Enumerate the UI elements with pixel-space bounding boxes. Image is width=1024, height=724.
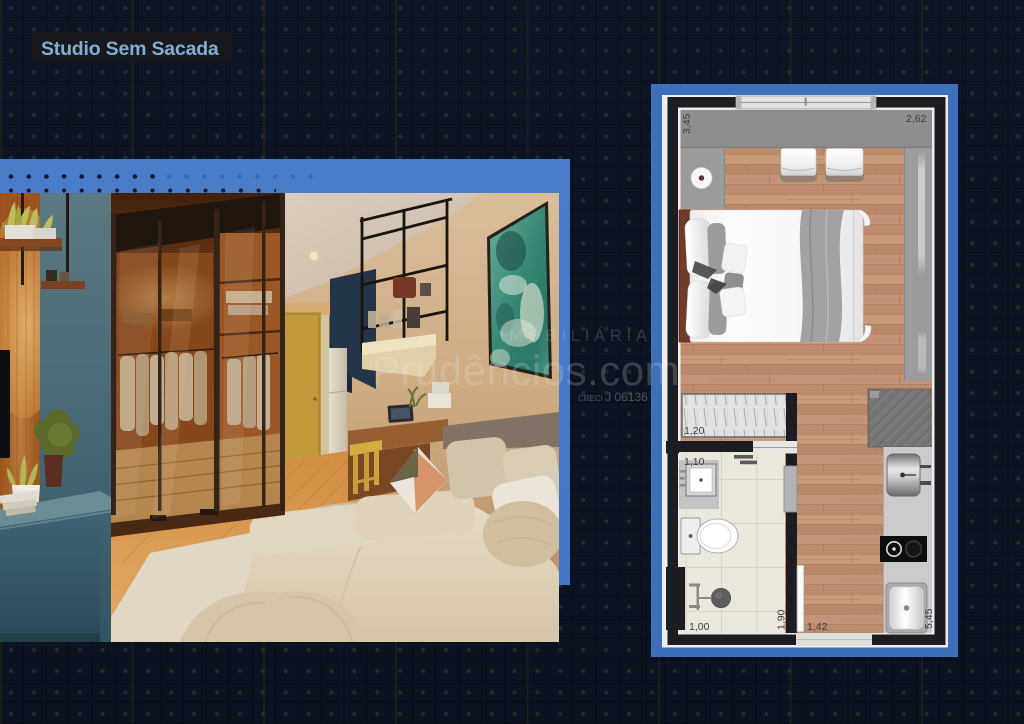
- svg-text:5,45: 5,45: [923, 608, 935, 629]
- svg-text:1,42: 1,42: [807, 621, 828, 633]
- svg-text:1,90: 1,90: [776, 609, 788, 630]
- svg-text:1,20: 1,20: [684, 425, 705, 437]
- svg-text:2,62: 2,62: [906, 113, 927, 125]
- svg-text:3,45: 3,45: [681, 113, 693, 134]
- svg-text:1,10: 1,10: [684, 456, 705, 468]
- svg-text:1,00: 1,00: [689, 621, 710, 633]
